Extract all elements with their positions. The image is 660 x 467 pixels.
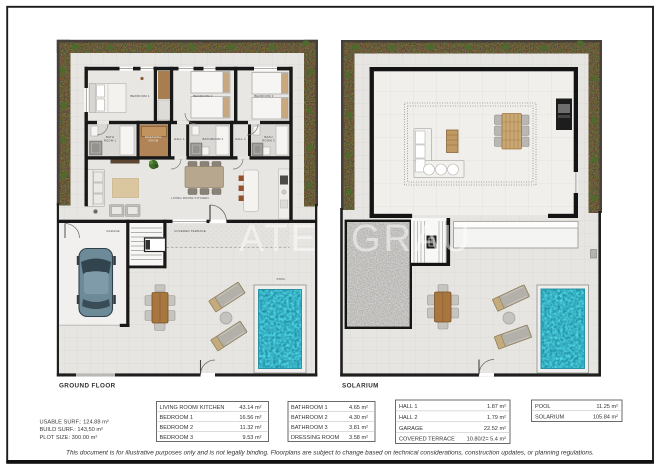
svg-text:HALL 2: HALL 2 xyxy=(399,415,417,421)
svg-text:1.79 m²: 1.79 m² xyxy=(487,415,506,421)
svg-text:HALL 1: HALL 1 xyxy=(174,137,185,141)
svg-text:ROOM 3: ROOM 3 xyxy=(262,139,275,143)
svg-text:USABLE SURF.: 124.88 m²: USABLE SURF.: 124.88 m² xyxy=(40,420,109,426)
svg-text:BATHROOM 1: BATHROOM 1 xyxy=(291,405,328,411)
svg-text:43.14 m²: 43.14 m² xyxy=(239,405,261,411)
svg-text:ROOM: ROOM xyxy=(149,139,159,143)
svg-text:3.81 m²: 3.81 m² xyxy=(349,425,368,431)
svg-text:3.58 m²: 3.58 m² xyxy=(349,435,368,441)
svg-text:ROOM 1: ROOM 1 xyxy=(104,139,117,143)
svg-text:10.80/2= 5.4 m²: 10.80/2= 5.4 m² xyxy=(467,437,506,443)
svg-text:11.25 m²: 11.25 m² xyxy=(596,404,618,410)
svg-text:BEDROOM 1: BEDROOM 1 xyxy=(130,94,149,98)
svg-text:BEDROOM 3: BEDROOM 3 xyxy=(160,435,194,441)
svg-text:DRESSING ROOM: DRESSING ROOM xyxy=(291,435,340,441)
svg-text:GARAGE: GARAGE xyxy=(399,426,423,432)
svg-text:9.53 m²: 9.53 m² xyxy=(243,435,262,441)
svg-text:22.52 m²: 22.52 m² xyxy=(484,426,506,432)
svg-text:BUILD SURF.: 143,50 m²: BUILD SURF.: 143,50 m² xyxy=(40,427,104,433)
svg-text:GRAU: GRAU xyxy=(351,218,473,260)
svg-text:POOL: POOL xyxy=(535,404,551,410)
svg-text:HALL 1: HALL 1 xyxy=(399,404,417,410)
svg-text:1.87 m²: 1.87 m² xyxy=(487,404,506,410)
svg-text:LIVING ROOM/ KITCHEN: LIVING ROOM/ KITCHEN xyxy=(160,405,225,411)
svg-text:This document is for illustrat: This document is for illustrative purpos… xyxy=(66,450,594,457)
svg-text:GROUND FLOOR: GROUND FLOOR xyxy=(59,383,116,390)
svg-text:16.56 m²: 16.56 m² xyxy=(239,415,261,421)
svg-text:BEDROOM 2: BEDROOM 2 xyxy=(193,94,212,98)
svg-text:COVERED TERRACE: COVERED TERRACE xyxy=(174,229,206,233)
svg-text:PLOT SIZE: 300.00 m²: PLOT SIZE: 300.00 m² xyxy=(40,435,98,441)
svg-text:POOL: POOL xyxy=(277,277,286,281)
svg-text:HALL 2: HALL 2 xyxy=(235,137,246,141)
svg-text:105.84 m²: 105.84 m² xyxy=(593,415,618,421)
svg-text:4.65 m²: 4.65 m² xyxy=(349,405,368,411)
svg-text:COVERED TERRACE: COVERED TERRACE xyxy=(399,437,455,443)
svg-text:4.30 m²: 4.30 m² xyxy=(349,415,368,421)
svg-text:LIVING ROOM/ KITCHEN: LIVING ROOM/ KITCHEN xyxy=(171,196,209,200)
svg-text:11.32 m²: 11.32 m² xyxy=(240,425,262,431)
svg-text:SOLARIUM: SOLARIUM xyxy=(342,383,379,390)
svg-text:BEDROOM 3: BEDROOM 3 xyxy=(254,94,273,98)
svg-text:BATHROOM 2: BATHROOM 2 xyxy=(203,137,224,141)
svg-text:ATE: ATE xyxy=(239,218,319,260)
svg-text:GARAGE: GARAGE xyxy=(106,229,120,233)
svg-text:BEDROOM 2: BEDROOM 2 xyxy=(160,425,194,431)
svg-text:BATHROOM 2: BATHROOM 2 xyxy=(291,415,328,421)
svg-text:BEDROOM 1: BEDROOM 1 xyxy=(160,415,194,421)
svg-text:BATHROOM 3: BATHROOM 3 xyxy=(291,425,328,431)
svg-text:SOLARIUM: SOLARIUM xyxy=(535,415,565,421)
